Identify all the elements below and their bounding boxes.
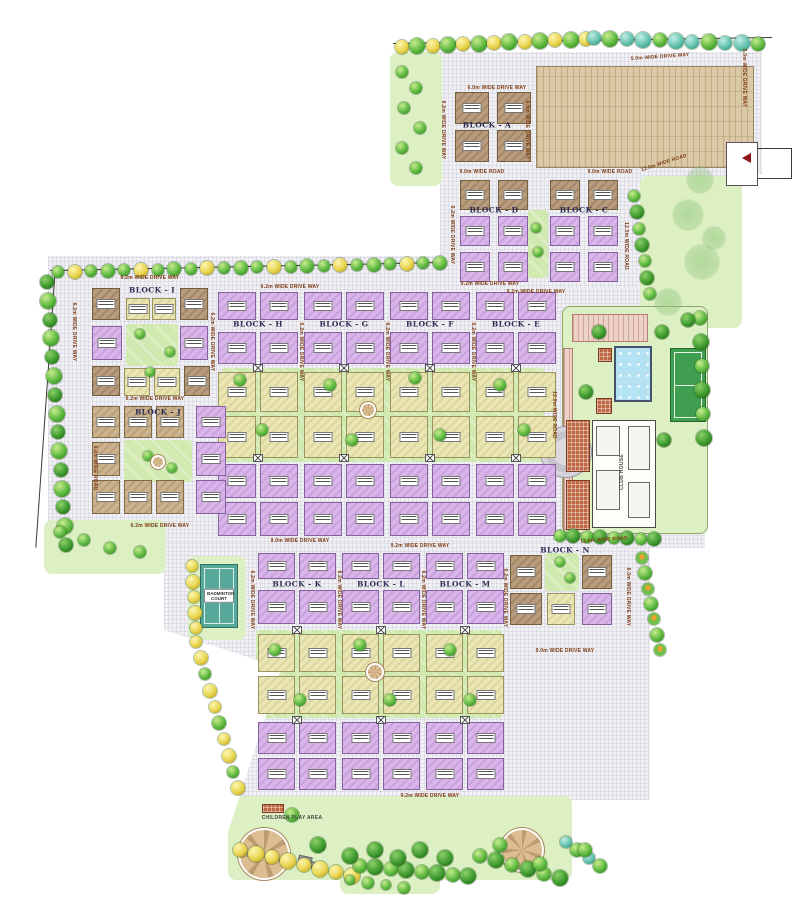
tree-icon xyxy=(672,199,704,231)
unit-label-chip xyxy=(202,454,221,464)
unit xyxy=(467,590,504,624)
tree-icon xyxy=(354,639,366,651)
unit-label-chip xyxy=(129,492,148,502)
unit xyxy=(476,292,514,320)
unit xyxy=(342,590,379,624)
unit xyxy=(476,332,514,364)
unit-label-chip xyxy=(486,301,505,311)
tree-icon xyxy=(167,463,177,473)
club-patio xyxy=(566,420,590,472)
unit-label-chip xyxy=(356,432,375,442)
unit xyxy=(426,676,463,714)
unit xyxy=(518,332,556,364)
unit-label-chip xyxy=(442,387,461,397)
unit-label-chip xyxy=(351,733,370,743)
tree-icon xyxy=(639,255,651,267)
unit xyxy=(180,288,208,320)
unit xyxy=(126,298,150,320)
unit-label-chip xyxy=(308,733,327,743)
courtyard-green xyxy=(528,210,548,278)
tree-icon xyxy=(367,842,383,858)
unit-label-chip xyxy=(185,299,204,309)
unit xyxy=(124,480,152,514)
unit xyxy=(346,502,384,536)
unit-label-chip xyxy=(466,226,485,236)
stair-lift xyxy=(511,454,521,462)
unit xyxy=(260,464,298,498)
tree-icon xyxy=(505,858,519,872)
unit-label-chip xyxy=(270,476,289,486)
unit-label-chip xyxy=(594,226,613,236)
badminton-court-label: BADMINTON COURT xyxy=(204,589,234,603)
unit xyxy=(383,553,420,579)
unit-label-chip xyxy=(504,190,523,200)
unit-label-chip xyxy=(392,733,411,743)
tree-icon xyxy=(52,266,64,278)
tree-icon xyxy=(410,162,422,174)
unit xyxy=(498,216,528,246)
block-label: BLOCK - N xyxy=(540,546,589,555)
unit-label-chip xyxy=(356,476,375,486)
tree-icon xyxy=(104,542,116,554)
club-patio xyxy=(566,480,590,530)
unit-label-chip xyxy=(158,377,177,387)
unit-label-chip xyxy=(442,343,461,353)
unit xyxy=(304,416,342,458)
tree-icon xyxy=(501,34,517,50)
road-label: 6.0m WIDE DRIVE WAY xyxy=(524,101,530,160)
unit-label-chip xyxy=(270,301,289,311)
unit-label-chip xyxy=(400,514,419,524)
tree-icon xyxy=(101,264,115,278)
unit xyxy=(184,366,210,396)
tree-icon xyxy=(165,347,175,357)
unit-label-chip xyxy=(435,733,454,743)
tree-icon xyxy=(644,597,658,611)
road-label: 9.2m WIDE DRIVE WAY xyxy=(401,793,460,799)
unit xyxy=(455,130,489,162)
unit-label-chip xyxy=(476,561,495,571)
tree-icon xyxy=(655,325,669,339)
unit xyxy=(383,634,420,672)
tree-icon xyxy=(648,613,660,625)
tree-icon xyxy=(555,557,565,567)
unit xyxy=(518,502,556,536)
unit xyxy=(476,502,514,536)
unit-label-chip xyxy=(356,514,375,524)
road-label: 9.0m WIDE ROAD xyxy=(588,169,633,175)
unit xyxy=(218,292,256,320)
unit-label-chip xyxy=(504,226,523,236)
unit xyxy=(258,590,295,624)
stair-lift xyxy=(339,454,349,462)
unit-label-chip xyxy=(228,387,247,397)
unit xyxy=(299,553,336,579)
unit-label-chip xyxy=(267,602,286,612)
tree-icon xyxy=(668,33,684,49)
unit-label-chip xyxy=(351,561,370,571)
tree-icon xyxy=(493,838,507,852)
unit-label-chip xyxy=(97,376,116,386)
pool-deck xyxy=(596,398,612,414)
unit-label-chip xyxy=(594,262,613,272)
unit xyxy=(588,252,618,282)
road-label: 6.2m WIDE DRIVE WAY xyxy=(121,275,180,281)
unit xyxy=(299,722,336,754)
unit-label-chip xyxy=(442,514,461,524)
unit-label-chip xyxy=(97,299,116,309)
club-house-label: CLUB HOUSE xyxy=(619,454,625,490)
club-parking xyxy=(572,314,648,342)
unit-label-chip xyxy=(476,648,495,658)
stair-lift xyxy=(339,364,349,372)
road-label: 9.0m WIDE DRIVE WAY xyxy=(536,648,595,654)
unit xyxy=(260,292,298,320)
courtyard-play xyxy=(360,402,376,418)
unit-label-chip xyxy=(517,604,536,614)
block-label: BLOCK - M xyxy=(440,580,491,589)
tree-icon xyxy=(751,37,765,51)
tree-icon xyxy=(592,325,606,339)
unit-label-chip xyxy=(98,338,117,348)
stair-lift xyxy=(292,716,302,724)
tree-icon xyxy=(398,102,410,114)
unit-label-chip xyxy=(528,514,547,524)
unit-label-chip xyxy=(351,769,370,779)
unit-label-chip xyxy=(556,190,575,200)
unit xyxy=(156,480,184,514)
unit-label-chip xyxy=(129,417,148,427)
tree-icon xyxy=(620,32,634,46)
unit xyxy=(346,332,384,364)
unit xyxy=(299,634,336,672)
block-label: BLOCK - A xyxy=(463,121,511,130)
unit-label-chip xyxy=(466,262,485,272)
unit-label-chip xyxy=(400,476,419,486)
tree-icon xyxy=(400,257,414,271)
unit-label-chip xyxy=(228,514,247,524)
block-label: BLOCK - L xyxy=(357,580,405,589)
tree-icon xyxy=(657,433,671,447)
tree-icon xyxy=(653,33,667,47)
tree-icon xyxy=(487,36,501,50)
unit-label-chip xyxy=(504,262,523,272)
unit xyxy=(342,676,379,714)
unit-label-chip xyxy=(314,301,333,311)
unit xyxy=(304,332,342,364)
road-label: 12.0m WIDE ROAD xyxy=(551,391,557,439)
unit xyxy=(390,292,428,320)
tree-icon xyxy=(54,526,66,538)
unit-label-chip xyxy=(97,454,116,464)
tree-icon xyxy=(203,684,217,698)
unit xyxy=(476,464,514,498)
unit xyxy=(196,442,226,476)
unit-label-chip xyxy=(314,343,333,353)
unit xyxy=(426,553,463,579)
unit xyxy=(196,480,226,514)
block-label: BLOCK - E xyxy=(492,320,540,329)
unit-label-chip xyxy=(270,514,289,524)
unit-label-chip xyxy=(267,561,286,571)
unit-label-chip xyxy=(351,602,370,612)
unit xyxy=(390,416,428,458)
unit-label-chip xyxy=(351,690,370,700)
tree-icon xyxy=(362,877,374,889)
unit xyxy=(547,593,575,625)
unit-label-chip xyxy=(505,141,524,151)
tree-icon xyxy=(231,781,245,795)
tree-icon xyxy=(640,271,654,285)
unit xyxy=(260,332,298,364)
club-room xyxy=(628,482,650,518)
unit-label-chip xyxy=(442,476,461,486)
tree-icon xyxy=(186,575,200,589)
unit xyxy=(260,502,298,536)
unit xyxy=(426,722,463,754)
tree-icon xyxy=(190,636,202,648)
unit-label-chip xyxy=(392,769,411,779)
tree-icon xyxy=(59,538,73,552)
unit xyxy=(152,298,176,320)
unit xyxy=(550,252,580,282)
unit-label-chip xyxy=(486,432,505,442)
road-label: 6.2m WIDE DRIVE WAY xyxy=(502,569,508,628)
stair-lift xyxy=(425,364,435,372)
road-label: 12.0m WIDE ROAD xyxy=(623,222,629,270)
site-plan: 5.0m WIDE DRIVE WAY5.0m WIDE DRIVE WAY6.… xyxy=(0,0,800,900)
tree-icon xyxy=(654,288,682,316)
unit xyxy=(588,216,618,246)
tree-icon xyxy=(46,368,62,384)
tree-icon xyxy=(635,32,651,48)
courtyard-green xyxy=(126,324,178,366)
unit-label-chip xyxy=(228,432,247,442)
tree-icon xyxy=(460,868,476,884)
tree-icon xyxy=(312,861,328,877)
unit-label-chip xyxy=(528,432,547,442)
tree-icon xyxy=(552,870,568,886)
road-label: 6.2m WIDE DRIVE WAY xyxy=(449,206,455,265)
tree-icon xyxy=(234,261,248,275)
unit-label-chip xyxy=(466,190,485,200)
unit-label-chip xyxy=(552,604,571,614)
tree-icon xyxy=(636,552,648,564)
unit xyxy=(154,368,180,396)
unit-label-chip xyxy=(486,476,505,486)
unit-label-chip xyxy=(476,690,495,700)
unit-label-chip xyxy=(517,567,536,577)
unit-label-chip xyxy=(308,648,327,658)
tree-icon xyxy=(186,560,198,572)
unit xyxy=(383,758,420,790)
unit xyxy=(476,372,514,412)
tree-icon xyxy=(324,379,336,391)
tree-icon xyxy=(297,858,311,872)
unit-label-chip xyxy=(588,567,607,577)
unit-label-chip xyxy=(314,432,333,442)
unit-label-chip xyxy=(97,417,116,427)
tree-icon xyxy=(630,205,644,219)
unit xyxy=(92,326,122,360)
unit xyxy=(455,92,489,124)
unit-label-chip xyxy=(270,432,289,442)
tree-icon xyxy=(188,591,200,603)
tree-icon xyxy=(351,259,363,271)
tree-icon xyxy=(686,166,714,194)
unit-label-chip xyxy=(228,301,247,311)
tree-icon xyxy=(593,859,607,873)
tree-icon xyxy=(434,429,446,441)
tree-icon xyxy=(548,33,562,47)
unit xyxy=(342,758,379,790)
tree-icon xyxy=(342,848,358,864)
block-label: BLOCK - H xyxy=(233,320,283,329)
unit-label-chip xyxy=(435,561,454,571)
stair-lift xyxy=(460,716,470,724)
tree-icon xyxy=(390,850,406,866)
unit xyxy=(299,676,336,714)
road-label: 9.0m WIDE ROAD xyxy=(460,169,505,175)
tree-icon xyxy=(693,334,709,350)
tree-icon xyxy=(49,406,65,422)
unit xyxy=(342,553,379,579)
tree-icon xyxy=(345,875,355,885)
tree-icon xyxy=(395,40,409,54)
unit-label-chip xyxy=(185,338,204,348)
unit xyxy=(426,758,463,790)
tree-icon xyxy=(412,842,428,858)
tree-icon xyxy=(54,463,68,477)
parking-area xyxy=(536,66,754,168)
unit-label-chip xyxy=(463,103,482,113)
unit-label-chip xyxy=(314,514,333,524)
unit-label-chip xyxy=(188,376,207,386)
unit-label-chip xyxy=(486,343,505,353)
tree-icon xyxy=(533,857,547,871)
tree-icon xyxy=(233,843,247,857)
unit-label-chip xyxy=(486,514,505,524)
road-label: 6.2m WIDE DRIVE WAY xyxy=(71,303,77,362)
tree-icon xyxy=(628,190,640,202)
unit xyxy=(518,292,556,320)
road-label: 6.2m WIDE DRIVE WAY xyxy=(209,313,215,372)
unit-label-chip xyxy=(442,301,461,311)
road-label: 6.2m WIDE DRIVE WAY xyxy=(384,323,390,382)
unit xyxy=(390,464,428,498)
road-label: 6.2m WIDE DRIVE WAY xyxy=(336,571,342,630)
tree-icon xyxy=(444,644,456,656)
unit-label-chip xyxy=(356,387,375,397)
stair-lift xyxy=(460,626,470,634)
unit-label-chip xyxy=(392,648,411,658)
road-label: 6.2m WIDE DRIVE WAY xyxy=(470,323,476,382)
unit-label-chip xyxy=(308,602,327,612)
unit xyxy=(304,292,342,320)
unit xyxy=(467,722,504,754)
unit-label-chip xyxy=(594,190,613,200)
stair-lift xyxy=(376,626,386,634)
unit-label-chip xyxy=(400,301,419,311)
tree-icon xyxy=(554,530,566,542)
unit xyxy=(342,722,379,754)
tree-icon xyxy=(48,388,62,402)
unit xyxy=(304,502,342,536)
tree-icon xyxy=(43,313,57,327)
tree-icon xyxy=(494,379,506,391)
tree-icon xyxy=(384,694,396,706)
unit xyxy=(390,502,428,536)
unit-label-chip xyxy=(314,476,333,486)
tree-icon xyxy=(587,31,601,45)
tree-icon xyxy=(318,260,330,272)
tree-icon xyxy=(718,36,732,50)
tree-icon xyxy=(531,223,541,233)
unit xyxy=(383,722,420,754)
unit xyxy=(432,292,470,320)
unit xyxy=(180,326,208,360)
unit xyxy=(258,758,295,790)
unit xyxy=(498,252,528,282)
unit xyxy=(304,464,342,498)
park-bench xyxy=(262,804,284,813)
tree-icon xyxy=(409,372,421,384)
unit-label-chip xyxy=(476,602,495,612)
unit xyxy=(582,555,612,589)
unit xyxy=(390,332,428,364)
unit xyxy=(476,416,514,458)
road-label: 6.2m WIDE DRIVE WAY xyxy=(249,571,255,630)
road-label: 6.2m WIDE DRIVE WAY xyxy=(440,101,446,160)
unit xyxy=(467,634,504,672)
tree-icon xyxy=(398,882,410,894)
unit xyxy=(510,593,542,625)
unit xyxy=(196,406,226,438)
road-label: 6.0m WIDE DRIVE WAY xyxy=(468,85,527,91)
tree-icon xyxy=(693,311,707,325)
tree-icon xyxy=(54,481,70,497)
unit xyxy=(92,288,120,320)
unit-label-chip xyxy=(392,561,411,571)
road-label: 6.2m WIDE DRIVE WAY xyxy=(261,284,320,290)
stair-lift xyxy=(376,716,386,724)
stair-lift xyxy=(511,364,521,372)
tree-icon xyxy=(367,258,381,272)
block-label: BLOCK - D xyxy=(469,206,518,215)
tree-icon xyxy=(696,430,712,446)
tree-icon xyxy=(446,868,460,882)
tree-icon xyxy=(267,260,281,274)
unit-label-chip xyxy=(356,301,375,311)
tree-icon xyxy=(285,261,297,273)
unit-label-chip xyxy=(155,304,174,314)
unit xyxy=(550,216,580,246)
entry-arrow-icon xyxy=(742,153,751,163)
unit xyxy=(426,590,463,624)
unit-label-chip xyxy=(528,301,547,311)
unit-label-chip xyxy=(400,432,419,442)
unit-label-chip xyxy=(267,733,286,743)
tree-icon xyxy=(681,313,695,327)
unit xyxy=(260,372,298,412)
tree-icon xyxy=(578,843,592,857)
block-label: BLOCK - K xyxy=(272,580,321,589)
unit-label-chip xyxy=(528,476,547,486)
club-room xyxy=(628,426,650,470)
unit xyxy=(467,553,504,579)
stair-lift xyxy=(425,454,435,462)
unit-label-chip xyxy=(588,604,607,614)
